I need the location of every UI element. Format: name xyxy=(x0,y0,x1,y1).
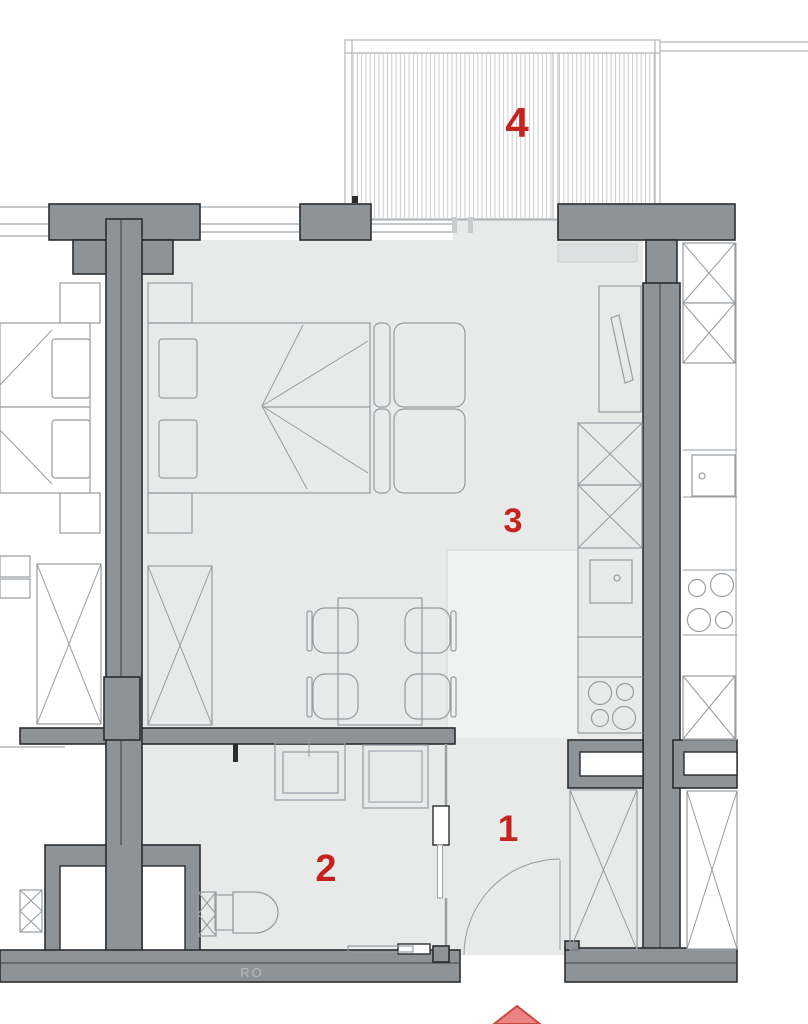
slab-tick xyxy=(352,196,358,203)
neighbor-burner-2 xyxy=(711,574,734,597)
neighbor-nightstand-top xyxy=(60,283,100,323)
neighbor-desk-1 xyxy=(0,556,30,577)
neighbor-pillow-bottom xyxy=(52,420,90,478)
neighbor-left xyxy=(0,283,101,932)
wall-top-middle xyxy=(300,204,371,240)
room-label-1: 1 xyxy=(498,808,519,849)
living-window xyxy=(371,224,452,232)
vent-niche-left-opening xyxy=(580,752,643,776)
facade-line-right xyxy=(660,42,808,51)
bedroom-window xyxy=(200,207,307,232)
sliding-door-track xyxy=(438,845,443,898)
pier-left-middle xyxy=(104,677,140,740)
kitchen-zone-floor xyxy=(447,550,578,738)
neighbor-right xyxy=(683,243,737,949)
balcony-divider xyxy=(553,53,558,219)
floor-plan: 4 3 1 2 RO xyxy=(0,0,808,1024)
room-label-3: 3 xyxy=(504,502,523,540)
vent-niche-right-opening xyxy=(684,752,737,775)
neighbor-duct-strip xyxy=(20,890,42,932)
balcony-door-jamb-right xyxy=(468,217,473,233)
radiator xyxy=(558,244,637,262)
sliding-door-leaf xyxy=(433,806,449,845)
neighbor-window-left xyxy=(0,207,49,236)
wall-top-right xyxy=(558,204,735,240)
balcony-hatch xyxy=(353,53,655,218)
neighbor-burner-3 xyxy=(688,609,711,632)
wall-bathroom-divider xyxy=(20,728,455,744)
wall-bottom-left xyxy=(0,950,460,982)
duct-opening-left xyxy=(60,866,106,958)
neighbor-burner-4 xyxy=(716,612,733,629)
entrance-arrow-icon xyxy=(494,1006,540,1024)
floors xyxy=(140,218,643,955)
balcony-door-jamb-left xyxy=(452,217,457,233)
floor-plan-page: 4 3 1 2 RO xyxy=(0,0,808,1024)
room-label-4: 4 xyxy=(505,99,529,146)
wall-tick xyxy=(233,744,238,762)
pier-top-right xyxy=(646,240,677,284)
party-wall-left xyxy=(106,219,142,963)
ro-label: RO xyxy=(240,965,264,980)
partition-base-stub xyxy=(433,946,449,962)
neighbor-desk-2 xyxy=(0,579,30,598)
duct-opening-right xyxy=(142,866,185,958)
party-wall-right xyxy=(643,283,680,963)
neighbor-burner-1 xyxy=(689,580,706,597)
room-label-2: 2 xyxy=(315,848,336,890)
wall-bottom-right xyxy=(565,948,737,982)
neighbor-pillow-top xyxy=(52,339,90,398)
neighbor-nightstand-bottom xyxy=(60,493,100,533)
